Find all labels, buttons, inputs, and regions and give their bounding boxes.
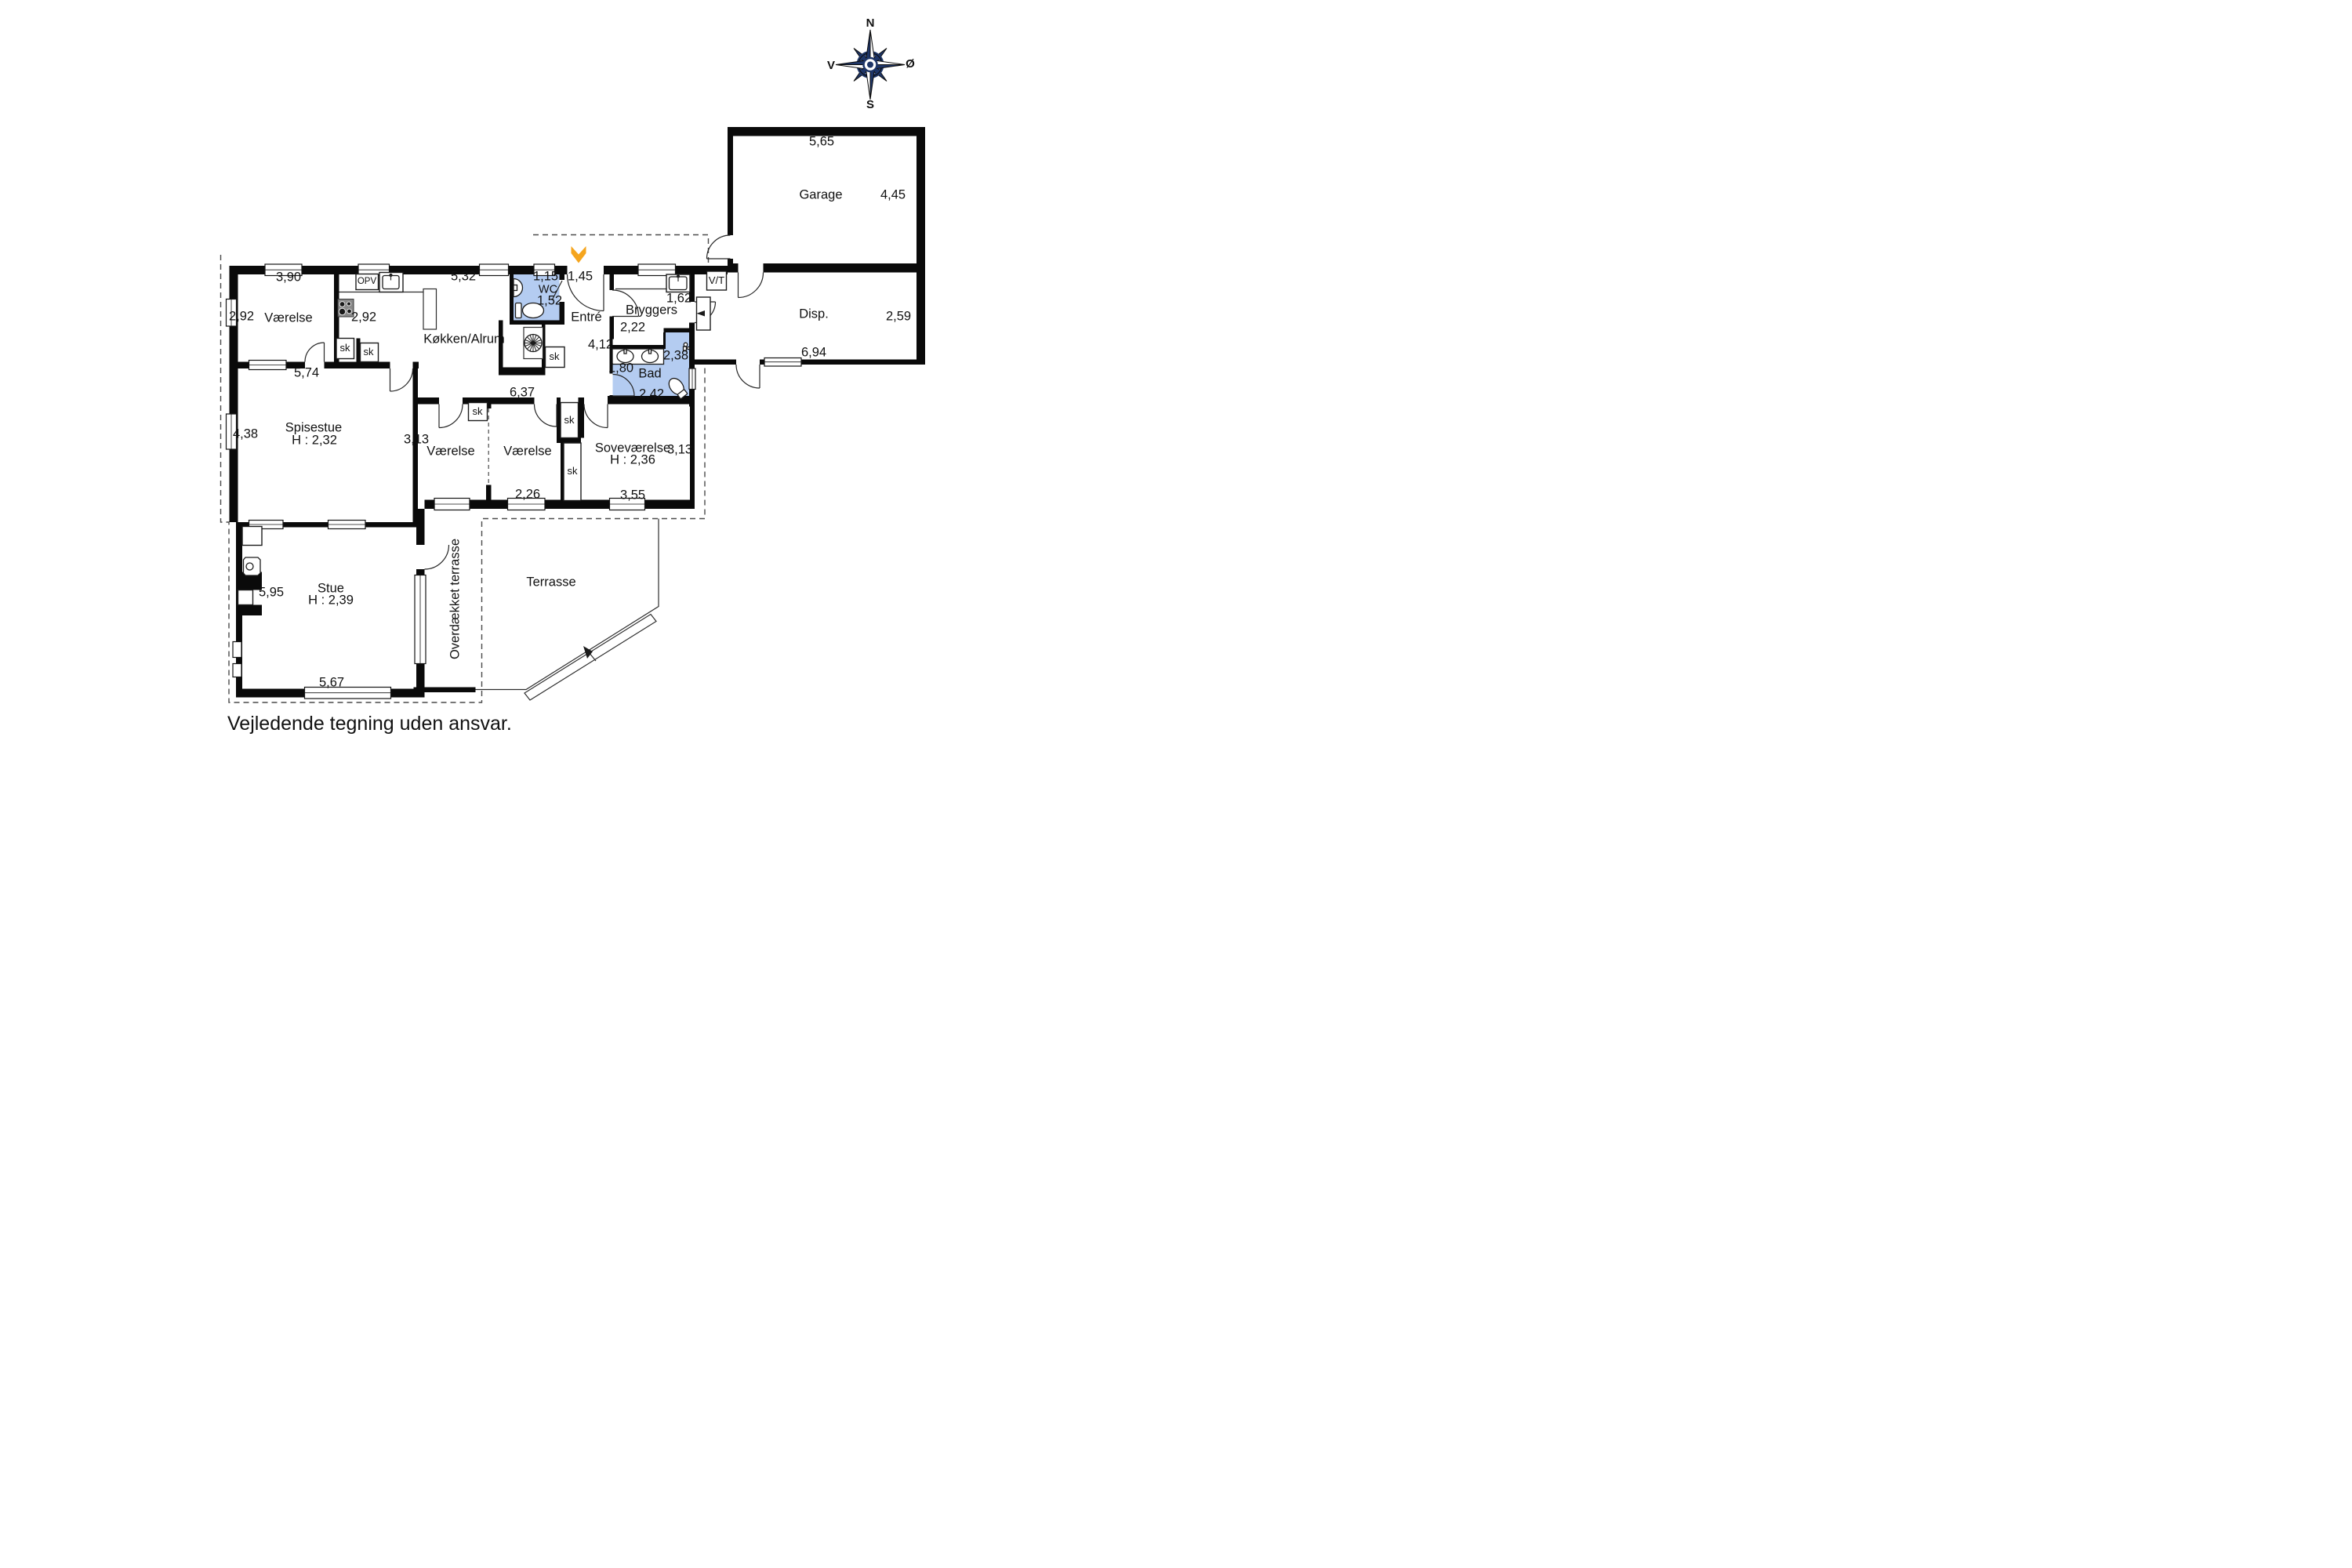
- closet-label: sk: [364, 347, 374, 358]
- windows-layer: [227, 264, 802, 699]
- dim-label: 1,15: [533, 270, 558, 283]
- dim-label: 5,65: [809, 135, 834, 148]
- garage-side-door-arc: [707, 235, 731, 259]
- room-mid-door-arc: [439, 405, 463, 428]
- dim-label: 2,42: [639, 387, 664, 401]
- terrace-outline: [476, 519, 659, 701]
- dim-label: 2,26: [515, 488, 540, 501]
- dim-label: 1,80: [608, 361, 633, 375]
- dim-label: 5,74: [294, 366, 319, 379]
- closet-label: sk: [340, 343, 350, 354]
- dim-label: 2,22: [620, 321, 645, 334]
- dim-label: H : 2,39: [308, 593, 354, 607]
- wood-stove-icon: [244, 557, 261, 575]
- room-e-door-arc: [535, 405, 557, 427]
- room-label-bad: Bad: [638, 367, 661, 380]
- fireplace-fan-icon: [524, 328, 543, 359]
- dim-label: 4,38: [233, 427, 258, 441]
- dim-label: 4,12: [588, 338, 613, 351]
- room-label-terrasse: Terrasse: [526, 575, 575, 589]
- room-label-garage: Garage: [799, 188, 842, 201]
- dim-label: 2,92: [229, 310, 254, 323]
- disclaimer-text: Vejledende tegning uden ansvar.: [227, 713, 512, 734]
- floor-plan-drawing: [0, 0, 1176, 784]
- stue-terrace-door-arc: [425, 545, 449, 569]
- dim-label: H : 2,32: [292, 434, 337, 447]
- dim-label: 6,37: [510, 386, 535, 399]
- dim-label: H : 2,36: [610, 453, 655, 466]
- bedroom-door-arc: [584, 405, 608, 428]
- dim-label: 5,67: [319, 676, 344, 689]
- compass-west-label: V: [827, 60, 835, 72]
- room-label-vaerelse-nw: Værelse: [264, 311, 312, 325]
- room-label-disp: Disp.: [799, 307, 829, 321]
- dim-label: 1,52: [537, 294, 562, 307]
- dim-label: 5,95: [259, 586, 284, 599]
- closet-label: sk: [564, 415, 575, 426]
- room-label-bryggers: Bryggers: [626, 303, 677, 317]
- dim-label: 2,38: [663, 349, 688, 362]
- compass-south-label: S: [866, 99, 874, 111]
- dim-label: 2,92: [351, 310, 376, 324]
- closet-label: sk: [550, 351, 560, 362]
- garage-disp-door-arc: [739, 273, 764, 298]
- compass-east-label: Ø: [906, 58, 915, 71]
- dim-label: 3,13: [667, 443, 692, 456]
- window: [227, 264, 802, 699]
- dim-label: 5,32: [451, 270, 476, 283]
- dim-label: 6,94: [801, 346, 826, 359]
- bryggers-sink-icon: [615, 274, 690, 292]
- fireplace-alcove: [242, 527, 262, 546]
- room-label-vt: V/T: [709, 275, 724, 286]
- chimney-box: [238, 590, 253, 605]
- room-nw-door-arc: [305, 343, 325, 362]
- room-label-entre: Entré: [571, 310, 601, 324]
- floor-plan: N S Ø V Garage 5,65 4,45 Disp. 2,59 6,94…: [0, 0, 1176, 784]
- dim-label: 1,62: [666, 292, 691, 305]
- compass-north-label: N: [866, 17, 875, 30]
- entrance-arrow-icon: [572, 246, 586, 263]
- dim-label: 3,13: [404, 433, 429, 446]
- wc-faucet-icon: [514, 285, 517, 291]
- room-label-overdaekket-terrasse: Overdækket terrasse: [448, 539, 462, 659]
- kitchen-sink-icon: [379, 273, 403, 292]
- spisestue-door-arc: [390, 368, 413, 391]
- dim-label: 3,90: [276, 270, 301, 284]
- terrace-steps: [524, 615, 656, 701]
- disp-south-door-arc: [736, 365, 760, 388]
- appliance-label-opv: OPV: [358, 277, 376, 286]
- compass-rose-icon: [836, 30, 905, 100]
- dim-label: 2,59: [886, 310, 911, 323]
- dim-label: 4,45: [880, 188, 906, 201]
- room-label-vaerelse-e: Værelse: [503, 445, 551, 458]
- closet-label: sk: [568, 466, 578, 477]
- kitchen-counter: [423, 289, 437, 330]
- room-label-vaerelse-mid: Værelse: [426, 445, 474, 458]
- dim-label: 1,45: [568, 270, 593, 283]
- closet-label: sk: [473, 406, 483, 417]
- room-label-kokken: Køkken/Alrum: [423, 332, 505, 346]
- dim-label: 3,55: [620, 488, 645, 502]
